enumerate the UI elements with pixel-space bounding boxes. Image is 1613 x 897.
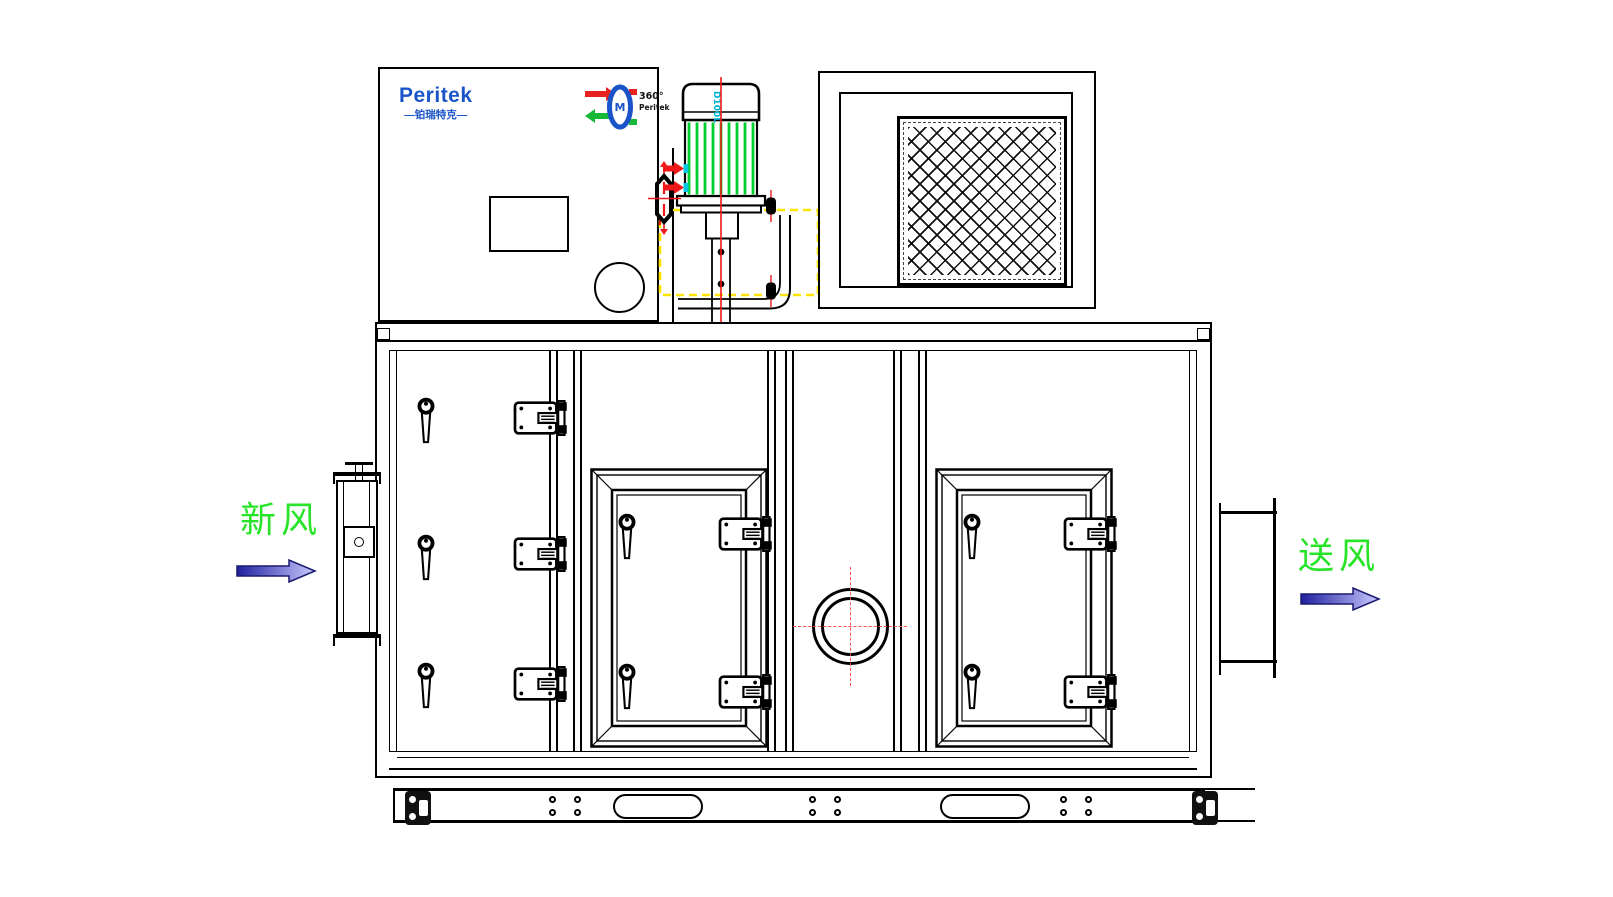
drive-motor-assembly: D100L bbox=[640, 75, 825, 325]
base-bolt-hole bbox=[549, 796, 556, 803]
cabinet-inner-line-right bbox=[1189, 350, 1190, 752]
control-panel-box: Peritek —铂瑞特克— M 360° Peritek bbox=[378, 67, 659, 322]
panel-knockout-circle bbox=[594, 262, 645, 313]
forklift-slot bbox=[613, 794, 703, 819]
inlet-label: 新风 bbox=[240, 502, 322, 538]
outlet-label: 送风 bbox=[1298, 538, 1380, 574]
panel-window bbox=[489, 196, 569, 252]
svg-text:M: M bbox=[615, 101, 626, 114]
damper-actuator-shaft bbox=[354, 537, 364, 547]
filter-box-inner bbox=[839, 92, 1073, 288]
dehumidifier-elevation-drawing: Peritek —铂瑞特克— M 360° Peritek bbox=[0, 0, 1613, 897]
outlet-flange-end bbox=[1273, 498, 1276, 678]
inlet-arrow-icon bbox=[236, 557, 318, 585]
cabinet-inner-line-left bbox=[396, 350, 397, 752]
divider-c-line bbox=[893, 350, 895, 752]
cabinet-top-notch-left bbox=[377, 328, 390, 340]
cabinet-top-notch-right bbox=[1197, 328, 1210, 340]
base-bolt-hole bbox=[834, 796, 841, 803]
sight-glass-centerline-v bbox=[850, 567, 851, 686]
divider-c-line bbox=[925, 350, 927, 752]
filter-box bbox=[818, 71, 1096, 309]
door-latch bbox=[1065, 517, 1117, 551]
base-bolt-hole bbox=[549, 809, 556, 816]
base-bolt-hole bbox=[1060, 796, 1067, 803]
filter-mesh bbox=[908, 127, 1056, 275]
base-anchor-bracket-right bbox=[1192, 791, 1218, 825]
door-latch bbox=[513, 536, 571, 572]
forklift-slot bbox=[940, 794, 1030, 819]
outlet-flange-left bbox=[1219, 503, 1221, 675]
base-bolt-hole bbox=[809, 796, 816, 803]
filter-mesh-phantom bbox=[903, 122, 1061, 280]
access-door-middle bbox=[590, 468, 768, 748]
brand-logo-subtext: —铂瑞特克— bbox=[399, 107, 473, 122]
hinge-handle bbox=[417, 661, 435, 711]
motor-model-label: D100L bbox=[711, 91, 721, 123]
outlet-arrow-icon bbox=[1300, 585, 1382, 613]
base-rail-left-end bbox=[393, 788, 395, 823]
divider-a-line bbox=[573, 350, 575, 752]
base-bolt-hole bbox=[809, 809, 816, 816]
outlet-flange-bottom bbox=[1221, 660, 1277, 663]
base-bolt-hole bbox=[1085, 796, 1092, 803]
access-door-right bbox=[935, 468, 1113, 748]
outlet-flange-top bbox=[1221, 511, 1277, 514]
base-rail-top bbox=[393, 788, 1205, 791]
hinge-handle bbox=[417, 396, 435, 446]
damper-bottom-cap bbox=[333, 634, 381, 638]
cabinet-top-band-line bbox=[375, 340, 1212, 342]
divider-a-line bbox=[580, 350, 582, 752]
base-bolt-hole bbox=[834, 809, 841, 816]
cabinet-bottom-line bbox=[389, 768, 1197, 770]
sight-glass-inner bbox=[821, 597, 880, 656]
divider-b-line bbox=[785, 350, 787, 752]
divider-b-line bbox=[774, 350, 776, 752]
base-bolt-hole bbox=[574, 809, 581, 816]
hinge-handle bbox=[417, 533, 435, 583]
divider-b-line bbox=[792, 350, 794, 752]
base-bolt-hole bbox=[1060, 809, 1067, 816]
base-anchor-bracket-left bbox=[405, 791, 431, 825]
filter-mesh-frame bbox=[897, 116, 1067, 286]
brand-logo-text: Peritek bbox=[399, 85, 473, 106]
divider-c-line bbox=[900, 350, 902, 752]
door-latch bbox=[1065, 675, 1117, 709]
base-bolt-hole bbox=[1085, 809, 1092, 816]
damper-top-cap bbox=[333, 472, 381, 476]
base-bolt-hole bbox=[574, 796, 581, 803]
door-latch bbox=[513, 666, 571, 702]
divider-c-line bbox=[918, 350, 920, 752]
door-latch bbox=[720, 517, 772, 551]
brand-logo: Peritek —铂瑞特克— bbox=[399, 85, 473, 122]
door-latch bbox=[720, 675, 772, 709]
door-latch bbox=[513, 400, 571, 436]
cabinet-inner-line-bottom bbox=[397, 757, 1189, 758]
base-rail-bottom bbox=[393, 820, 1205, 823]
